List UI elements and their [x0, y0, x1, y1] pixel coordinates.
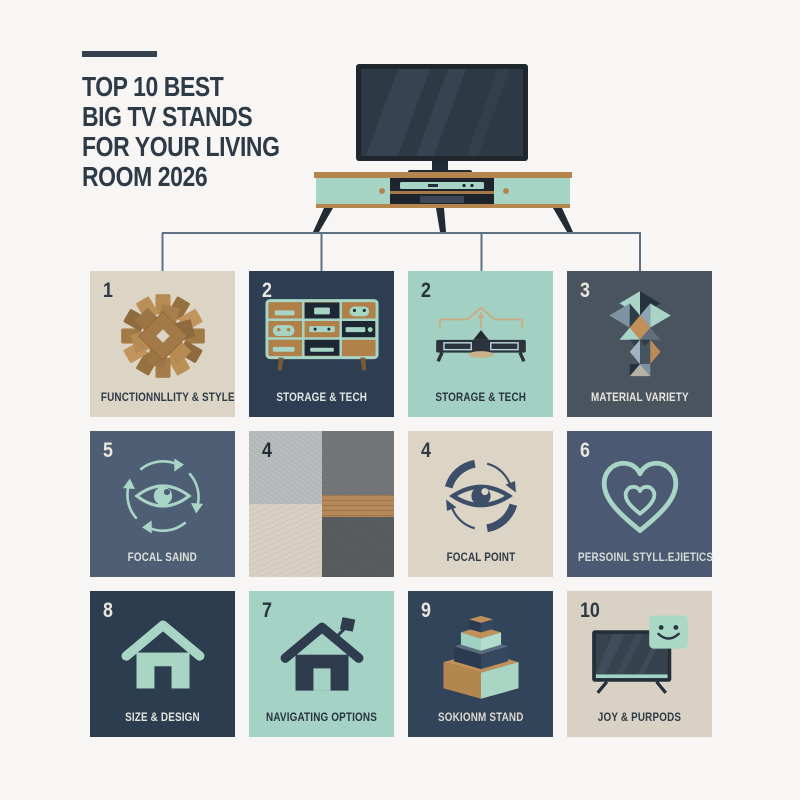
tile-label	[249, 552, 394, 564]
tile-label: MATERIAL VARIETY	[567, 392, 712, 404]
tile-label: SOKIONM STAND	[408, 712, 553, 724]
tile-label: FOCAL POINT	[408, 552, 553, 564]
tile-label: STORAGE & TECH	[408, 392, 553, 404]
tile-material-textures: 4	[249, 431, 394, 577]
page-title: TOP 10 BEST BIG TV STANDS FOR YOUR LIVIN…	[82, 72, 280, 192]
connector-lines	[150, 230, 650, 272]
stacked-boxes-icon	[408, 613, 553, 699]
texture-charcoal-stone	[322, 517, 395, 577]
tiles-grid: 1	[90, 271, 712, 737]
tile-navigating-options: 7 NAVIGATING OPTIONS	[249, 591, 394, 737]
tile-joy-purpods: 10	[567, 591, 712, 737]
title-line: TOP 10 BEST	[82, 72, 280, 102]
tile-storage-tech-mint: 2 STORAGE & TECH	[408, 271, 553, 417]
title-accent-bar	[82, 51, 157, 57]
double-heart-icon	[567, 453, 712, 539]
tile-label: STORAGE & TECH	[249, 392, 394, 404]
tile-focal-saind: 5	[90, 431, 235, 577]
tile-size-design: 8 SIZE & DESIGN	[90, 591, 235, 737]
tile-personal-style: 6 PERSOINL STYLL.EJIETICS	[567, 431, 712, 577]
texture-cream-stone	[249, 504, 322, 577]
tile-label: FUNCTIONNLLITY & STYLE	[90, 392, 235, 404]
wood-parquet-starburst-icon	[90, 293, 235, 379]
tile-number: 4	[262, 439, 272, 463]
tile-functionality-style: 1	[90, 271, 235, 417]
eye-cycle-arrows-icon	[408, 453, 553, 539]
tile-label: FOCAL SAIND	[90, 552, 235, 564]
media-console-shelves-icon	[249, 293, 394, 379]
tv-stand-illustration	[302, 58, 582, 234]
tile-material-variety: 3	[567, 271, 712, 417]
tv-smiley-icon	[567, 613, 712, 699]
tile-label: PERSOINL STYLL.EJIETICS	[567, 552, 712, 564]
title-line: FOR YOUR LIVING	[82, 132, 280, 162]
tile-focal-point: 4 FOCAL	[408, 431, 553, 577]
tile-sokionm-stand: 9 SOKIONM STAND	[408, 591, 553, 737]
house-icon	[90, 613, 235, 699]
tv-console-graphic	[302, 58, 582, 234]
texture-light-concrete	[249, 431, 322, 504]
tile-label: NAVIGATING OPTIONS	[249, 712, 394, 724]
house-flag-icon	[249, 613, 394, 699]
texture-wood-strip	[322, 495, 395, 517]
texture-gray-concrete	[322, 431, 395, 495]
tile-storage-tech-dark: 2	[249, 271, 394, 417]
infographic-canvas: TOP 10 BEST BIG TV STANDS FOR YOUR LIVIN…	[0, 0, 800, 800]
tv-stand-up-arrow-icon	[408, 293, 553, 379]
tile-label: JOY & PURPODS	[567, 712, 712, 724]
title-line: BIG TV STANDS	[82, 102, 280, 132]
tile-label: SIZE & DESIGN	[90, 712, 235, 724]
triangle-mosaic-icon	[567, 293, 712, 379]
eye-cycle-arrows-icon	[90, 453, 235, 539]
title-line: ROOM 2026	[82, 162, 280, 192]
